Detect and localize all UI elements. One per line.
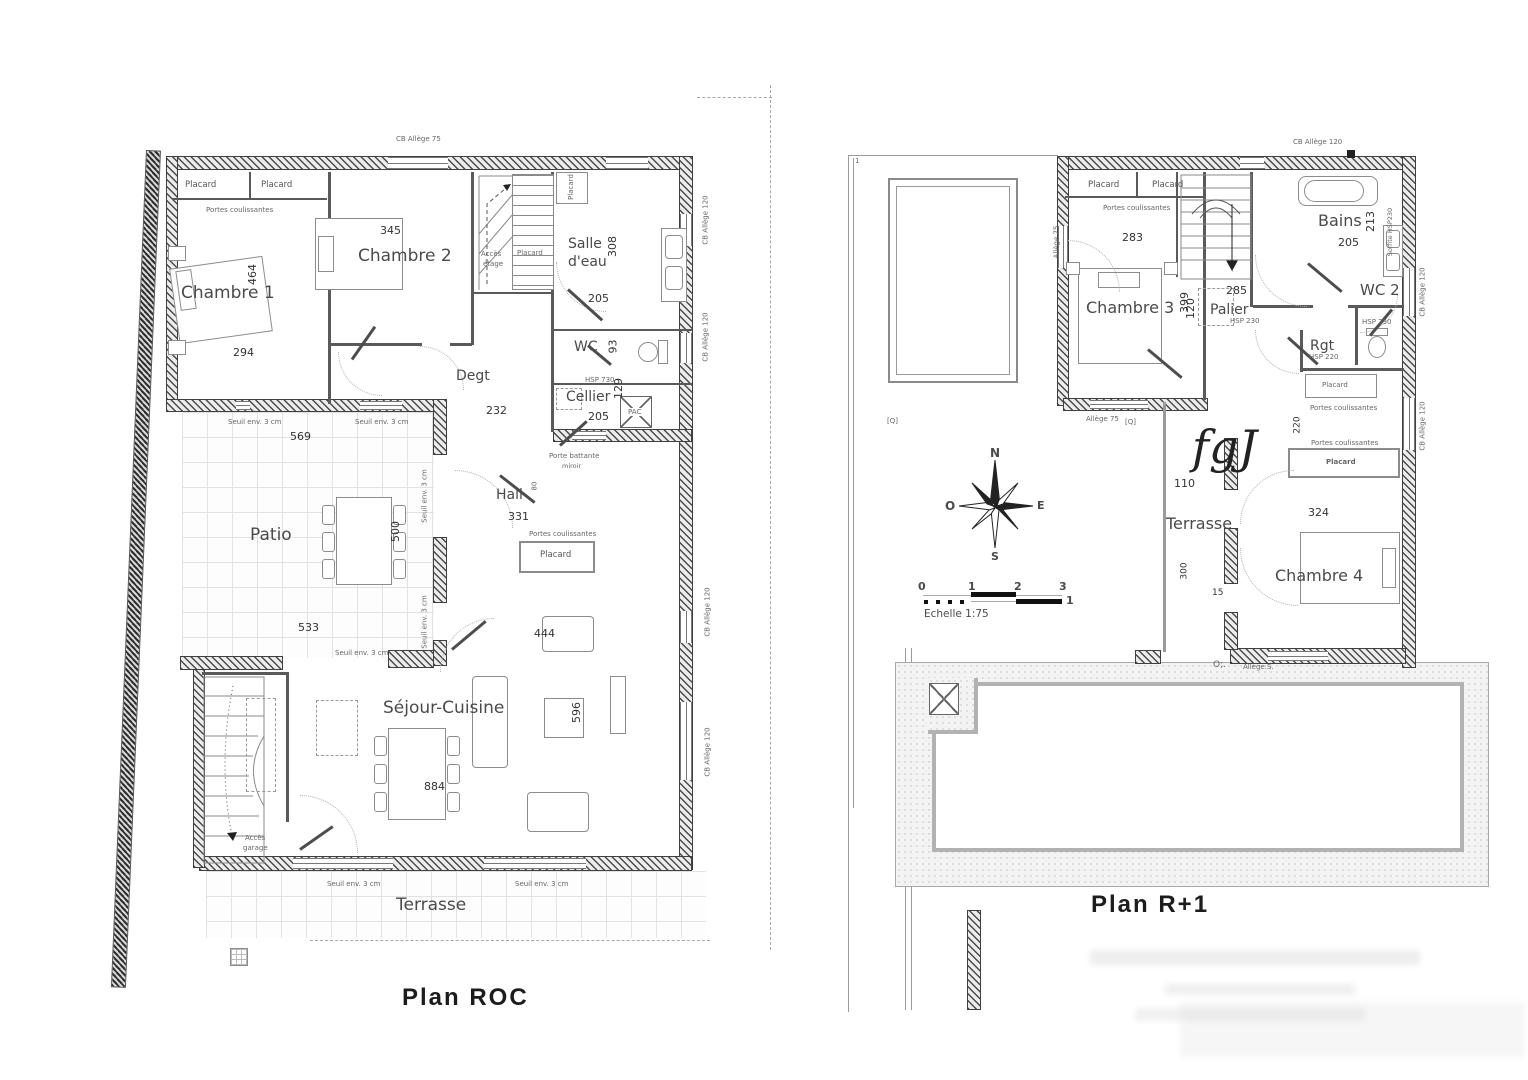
- part-c2-stair: [471, 172, 474, 345]
- room-wc: WC: [574, 339, 598, 355]
- label-porte-battante: Porte battante: [549, 452, 599, 460]
- label-soffite: Soffite HSP230: [1386, 208, 1394, 256]
- scale-seg-thin: [971, 601, 1016, 602]
- door-leaf: [1307, 262, 1343, 293]
- floorplan-sheet: Chambre 1 Chambre 2 Salle d'eau WC Celli…: [0, 0, 1528, 1080]
- watermark-line: [1090, 950, 1420, 965]
- sofa-1: [472, 676, 508, 768]
- plot-line: [848, 155, 1058, 156]
- skylight: [929, 683, 959, 715]
- door-arc: [1240, 470, 1294, 524]
- label-seuil: Seuil env. 3 cm: [421, 595, 429, 648]
- bed-chambre2-pillow: [318, 236, 334, 272]
- label-cb-allege-120: CB Allège 120: [702, 195, 710, 244]
- chair: [374, 764, 387, 784]
- label-portes-coulissantes: Portes coulissantes: [1310, 404, 1377, 412]
- dim: 15: [1212, 588, 1223, 598]
- part-placard-div: [249, 172, 251, 199]
- room-hall: Hall: [496, 487, 523, 503]
- chair: [393, 559, 406, 579]
- label-placard: Placard: [1322, 381, 1348, 389]
- wall-bottom-pier: [1135, 650, 1161, 664]
- dim: 232: [486, 404, 507, 417]
- dim: 294: [233, 346, 254, 359]
- window-right-3: [680, 611, 692, 643]
- label-placard: Placard: [1326, 458, 1356, 466]
- label-hsp230: HSP 230: [1362, 318, 1392, 326]
- hatch-strip: [967, 910, 981, 1010]
- label-q-mark: [Q]: [887, 417, 898, 425]
- label-hsp230: HSP 230: [1230, 317, 1260, 325]
- label-placard: Placard: [567, 174, 575, 200]
- chair: [322, 505, 335, 525]
- chair: [374, 792, 387, 812]
- dim: 213: [1364, 211, 1377, 232]
- room-chambre4: Chambre 4: [1275, 566, 1363, 585]
- stair-arrival-gap: [1240, 157, 1264, 169]
- label-seuil: Seuil env. 3 cm: [515, 880, 568, 888]
- room-salle-deau-1: Salle: [568, 236, 602, 252]
- scale-seg-black: [971, 592, 1016, 597]
- lower-roof-white: [932, 682, 1464, 852]
- kitchen-island: [316, 700, 358, 756]
- title-plan-roc: Plan ROC: [402, 984, 529, 1012]
- room-patio: Patio: [250, 525, 292, 545]
- compass-s: S: [991, 550, 999, 563]
- window-c4-bottom: [1268, 651, 1328, 661]
- window-right-2: [680, 333, 692, 363]
- dim: 308: [606, 236, 619, 257]
- room-salle-deau-2: d'eau: [568, 254, 607, 270]
- stair-down: [1180, 174, 1252, 280]
- chair: [447, 764, 460, 784]
- label-placard: Placard: [540, 550, 571, 560]
- label-portes-coulissantes: Portes coulissantes: [206, 206, 273, 214]
- scale-seg-thin: [923, 595, 971, 596]
- label-placard: Placard: [261, 180, 292, 190]
- door-arc: [1255, 330, 1299, 374]
- patio-pier-2: [433, 537, 447, 603]
- plot-line: [853, 158, 854, 808]
- dim: 285: [1226, 284, 1247, 297]
- slider-bottom-2: [484, 858, 586, 869]
- label-cb-allege-75: CB Allège 75: [396, 135, 441, 143]
- label-pac: PAC: [628, 408, 641, 416]
- compass: N E S O: [945, 448, 1045, 563]
- dim: 596: [570, 702, 583, 723]
- window-top-2: [606, 157, 648, 169]
- patio-void-inner: [896, 186, 1010, 375]
- label-allege-75: Allège 75: [1052, 226, 1060, 259]
- chair: [447, 736, 460, 756]
- dim: 345: [380, 224, 401, 237]
- label-miroir: miroir: [562, 462, 581, 470]
- bed-chambre4-pillow: [1382, 548, 1396, 588]
- label-door-80: 80: [530, 482, 538, 491]
- dim: 533: [298, 621, 319, 634]
- label-seuil: Seuil env. 3 cm: [421, 469, 429, 522]
- dim: 110: [1174, 477, 1195, 490]
- window-c3-bottom: [1090, 400, 1148, 409]
- nightstand-4: [1164, 262, 1178, 275]
- label-placard: Placard: [185, 180, 216, 190]
- dining-table-patio: [336, 497, 392, 585]
- survey-line: [770, 85, 771, 950]
- label-acces-garage-1: Accès: [245, 834, 265, 842]
- cellier-door: [572, 431, 606, 440]
- scale-dots: [924, 600, 968, 604]
- label-portes-coulissantes: Portes coulissantes: [529, 530, 596, 538]
- part-c3-placard-div: [1136, 172, 1138, 197]
- chair: [447, 792, 460, 812]
- label-seuil: Seuil env. 3 cm: [335, 649, 388, 657]
- room-cellier: Cellier: [566, 389, 610, 405]
- wc-bowl: [638, 342, 658, 362]
- room-bains: Bains: [1318, 211, 1362, 230]
- stair-up-winder: [477, 174, 515, 292]
- dim: 569: [290, 430, 311, 443]
- wc-tank: [658, 340, 668, 364]
- label-allege-s: Allège.S.: [1243, 663, 1274, 671]
- compass-e: E: [1037, 499, 1045, 512]
- scale-tick-3: 3: [1059, 580, 1067, 593]
- window-right-r2: [1403, 398, 1415, 450]
- watermark-line: [1165, 984, 1355, 995]
- survey-line: [697, 97, 772, 98]
- stair-up-flight: [512, 174, 554, 290]
- patio-top-door-2: [360, 401, 402, 410]
- room-palier: Palier: [1210, 302, 1249, 318]
- corner-post: [1347, 150, 1355, 158]
- label-o-mark: O;.: [1213, 660, 1226, 670]
- scale-label: Echelle 1:75: [924, 608, 989, 620]
- chair: [322, 559, 335, 579]
- label-portes-coulissantes: Portes coulissantes: [1103, 204, 1170, 212]
- label-cb-allege-120: CB Allège 120: [704, 587, 712, 636]
- room-degt: Degt: [456, 368, 490, 384]
- compass-n: N: [990, 446, 1000, 460]
- nightstand-1: [168, 246, 186, 261]
- room-terrasse: Terrasse: [396, 895, 466, 915]
- scale-tick-0: 0: [918, 580, 926, 593]
- wall-top-r: [1057, 156, 1415, 170]
- window-right-r1: [1403, 268, 1415, 316]
- compass-rose-icon: [945, 448, 1045, 563]
- title-plan-r1: Plan R+1: [1091, 891, 1209, 919]
- label-cb-allege-120: CB Allège 120: [702, 312, 710, 361]
- label-acces-etage-1: Accès: [481, 250, 501, 258]
- label-cb-allege-120: CB Allège 120: [1419, 267, 1427, 316]
- dim: 205: [588, 410, 609, 423]
- boundary-band: [111, 150, 161, 988]
- label-seuil: Seuil env. 3 cm: [355, 418, 408, 426]
- door-arc: [1068, 240, 1120, 292]
- scale-sub: 1: [1066, 594, 1074, 607]
- dim: 300: [1180, 562, 1190, 579]
- room-chambre2: Chambre 2: [358, 246, 452, 266]
- room-chambre1: Chambre 1: [181, 283, 275, 303]
- wc2-bowl: [1368, 336, 1386, 358]
- room-chambre3: Chambre 3: [1086, 298, 1174, 317]
- label-cb-allege-120: CB Allège 120: [1419, 401, 1427, 450]
- door-arc: [338, 352, 382, 396]
- dim: 884: [424, 780, 445, 793]
- label-portes-coulissantes: Portes coulissantes: [1311, 439, 1378, 447]
- part-sde-wc: [553, 329, 692, 331]
- dim: 444: [534, 627, 555, 640]
- label-hsp220: HSP 220: [1309, 353, 1339, 361]
- part-stair-bottom: [471, 292, 553, 294]
- kitchen-counter: [246, 698, 276, 792]
- compass-o: O: [945, 499, 955, 513]
- dim: 283: [1122, 231, 1143, 244]
- dim: 220: [1293, 416, 1303, 433]
- wall-patio-top: [166, 399, 446, 412]
- dim: 205: [588, 292, 609, 305]
- plot-line: [848, 155, 849, 1012]
- label-cb-allege-120: CB Allège 120: [704, 727, 712, 776]
- scale-seg-thin: [1016, 595, 1062, 596]
- part-stair-enclosure-top: [202, 672, 288, 675]
- label-acces-etage-2: étage: [483, 260, 503, 268]
- window-right-4: [680, 702, 692, 780]
- tv-bench: [610, 676, 626, 734]
- c4-pier-2: [1224, 528, 1238, 584]
- dim: 324: [1308, 506, 1329, 519]
- part-c2-bottom-b: [450, 343, 472, 346]
- drain-grid: [230, 948, 248, 966]
- chair: [322, 532, 335, 552]
- label-placard: Placard: [1152, 180, 1183, 190]
- dim: 464: [246, 264, 259, 285]
- dining-table-sejour: [388, 728, 446, 820]
- dim: 205: [1338, 236, 1359, 249]
- label-allege-75: Allège 75: [1086, 415, 1119, 423]
- patio-pier-4: [388, 650, 434, 668]
- room-wc2: WC 2: [1360, 281, 1400, 299]
- part-rgt-bottom: [1300, 368, 1404, 371]
- terrasse-limit: [310, 940, 710, 941]
- bathtub-inner: [1304, 180, 1364, 202]
- c4-pier-3: [1224, 612, 1238, 650]
- label-seuil: Seuil env. 3 cm: [228, 418, 281, 426]
- slider-bottom-1: [293, 858, 393, 869]
- part-c2-bottom-a: [330, 343, 422, 346]
- label-cb-allege-120-top: CB Allège 120: [1293, 138, 1342, 146]
- sink-1: [665, 235, 683, 259]
- door-arc: [440, 618, 494, 672]
- dim: 93: [607, 340, 620, 354]
- dim: 500: [389, 521, 402, 542]
- label-hsp730: HSP 730: [585, 376, 615, 384]
- sink-2: [665, 266, 683, 290]
- part-wc2-left: [1355, 307, 1358, 365]
- door-arc: [1255, 255, 1307, 307]
- window-top-1: [388, 157, 448, 169]
- nightstand-2: [168, 340, 186, 355]
- watermark-line: [1180, 1002, 1525, 1057]
- label-plot-1: 1: [855, 157, 859, 165]
- room-rgt: Rgt: [1310, 338, 1334, 354]
- room-sejour: Séjour-Cuisine: [383, 698, 504, 718]
- label-acces-garage-2: garage: [243, 844, 268, 852]
- sofa-2: [527, 792, 589, 832]
- scale-seg-black: [1016, 599, 1062, 604]
- label-placard: Placard: [1088, 180, 1119, 190]
- label-fgj: fgJ: [1192, 420, 1257, 474]
- dim: 331: [508, 510, 529, 523]
- label-placard: Placard: [517, 249, 543, 257]
- patio-top-door-1: [236, 401, 250, 410]
- room-terrasse-r: Terrasse: [1166, 514, 1232, 533]
- label-seuil: Seuil env. 3 cm: [327, 880, 380, 888]
- chair: [374, 736, 387, 756]
- label-q-mark: [Q]: [1125, 418, 1136, 426]
- wall-patio-bottom: [180, 656, 283, 670]
- scale-bar: 0 1 2 3 1 Echelle 1:75: [918, 580, 1078, 622]
- patio-pier-1: [433, 399, 447, 455]
- dim: 120: [1184, 298, 1197, 319]
